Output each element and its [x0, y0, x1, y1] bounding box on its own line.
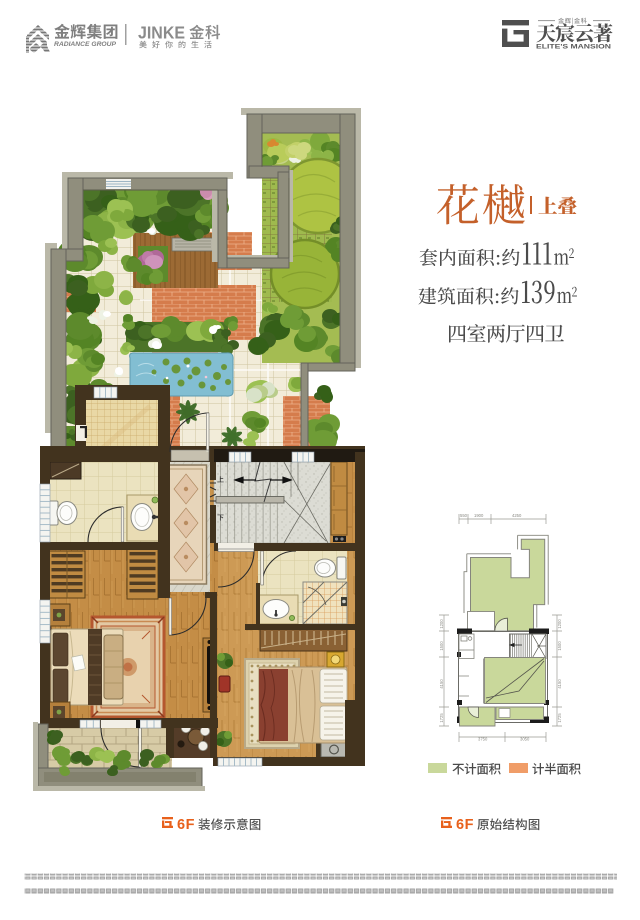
svg-text:4150: 4150 [439, 679, 444, 689]
svg-text:1200: 1200 [439, 619, 444, 629]
svg-text:3750: 3750 [478, 737, 488, 742]
svg-text:JINKE: JINKE [138, 23, 185, 43]
svg-text:RADIANCE GROUP: RADIANCE GROUP [54, 41, 117, 48]
svg-text:1500: 1500 [439, 641, 444, 651]
svg-text:ELITE'S MANSION: ELITE'S MANSION [536, 44, 611, 51]
svg-text:1900: 1900 [474, 513, 484, 518]
svg-text:6F: 6F [177, 817, 195, 833]
svg-text:550: 550 [460, 513, 468, 518]
svg-text:3050: 3050 [520, 737, 530, 742]
svg-text:4150: 4150 [557, 679, 562, 689]
svg-text:6F: 6F [456, 817, 474, 833]
svg-text:1725: 1725 [557, 713, 562, 723]
svg-text:1725: 1725 [439, 713, 444, 723]
svg-text:4250: 4250 [512, 513, 522, 518]
svg-text:1500: 1500 [557, 641, 562, 651]
svg-text:1200: 1200 [557, 619, 562, 629]
